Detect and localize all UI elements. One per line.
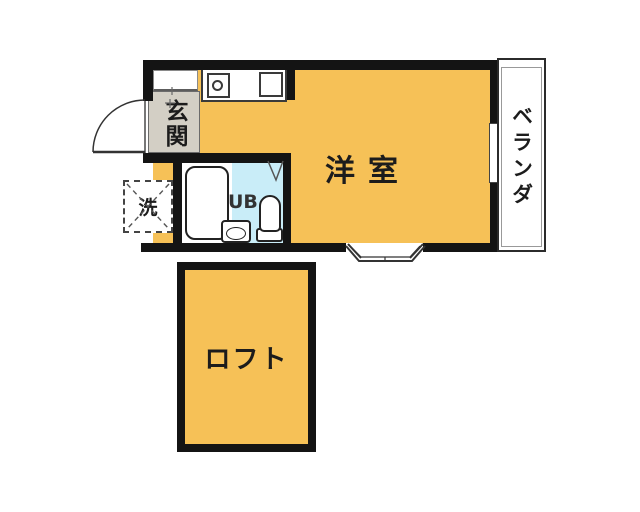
kitchen-sink-icon bbox=[259, 72, 283, 97]
bay-window-icon bbox=[346, 244, 425, 261]
wall-bottom-right bbox=[423, 243, 498, 252]
entrance-door-swing-icon bbox=[93, 100, 145, 152]
entrance-door-opening bbox=[144, 101, 146, 153]
floor-plan: ベランダ ロフト 洗 玄関 洋室 UB bbox=[0, 0, 640, 512]
toilet-icon bbox=[259, 195, 281, 232]
stove-burner-icon bbox=[212, 80, 223, 91]
unit-bath-label: UB bbox=[228, 191, 258, 213]
wall-entrance-bottom bbox=[143, 153, 291, 163]
wall-bottom-left bbox=[141, 243, 346, 252]
wall-bath-right bbox=[283, 153, 291, 252]
washing-machine-space: 洗 bbox=[123, 180, 173, 233]
entrance-label: 玄関 bbox=[148, 96, 200, 152]
wall-bath-left bbox=[173, 153, 182, 252]
shoe-closet-icon bbox=[153, 70, 198, 91]
washer-label: 洗 bbox=[138, 193, 157, 220]
loft-area: ロフト bbox=[177, 262, 316, 452]
balcony-label: ベランダ bbox=[507, 105, 537, 209]
wall-left-upper bbox=[143, 60, 153, 101]
balcony-inner: ベランダ bbox=[501, 67, 542, 247]
washbasin-bowl-icon bbox=[226, 227, 246, 240]
wall-kitchen-stub bbox=[287, 70, 295, 100]
main-room-label: 洋室 bbox=[325, 146, 411, 190]
loft-label: ロフト bbox=[204, 339, 288, 376]
wall-top bbox=[143, 60, 498, 70]
